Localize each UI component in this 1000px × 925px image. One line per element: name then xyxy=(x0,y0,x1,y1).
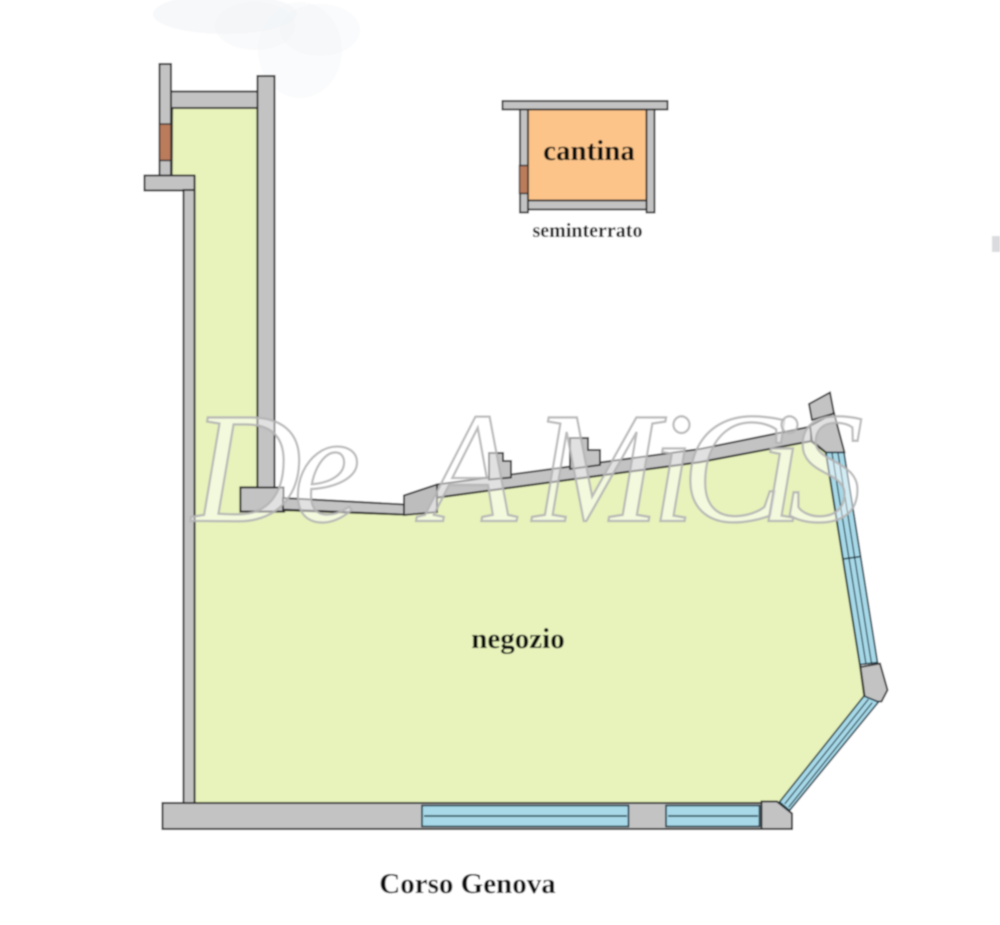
svg-text:Corso Genova: Corso Genova xyxy=(379,868,556,900)
svg-text:negozio: negozio xyxy=(471,623,564,655)
svg-text:seminterrato: seminterrato xyxy=(533,220,643,242)
svg-text:cantina: cantina xyxy=(543,135,635,167)
